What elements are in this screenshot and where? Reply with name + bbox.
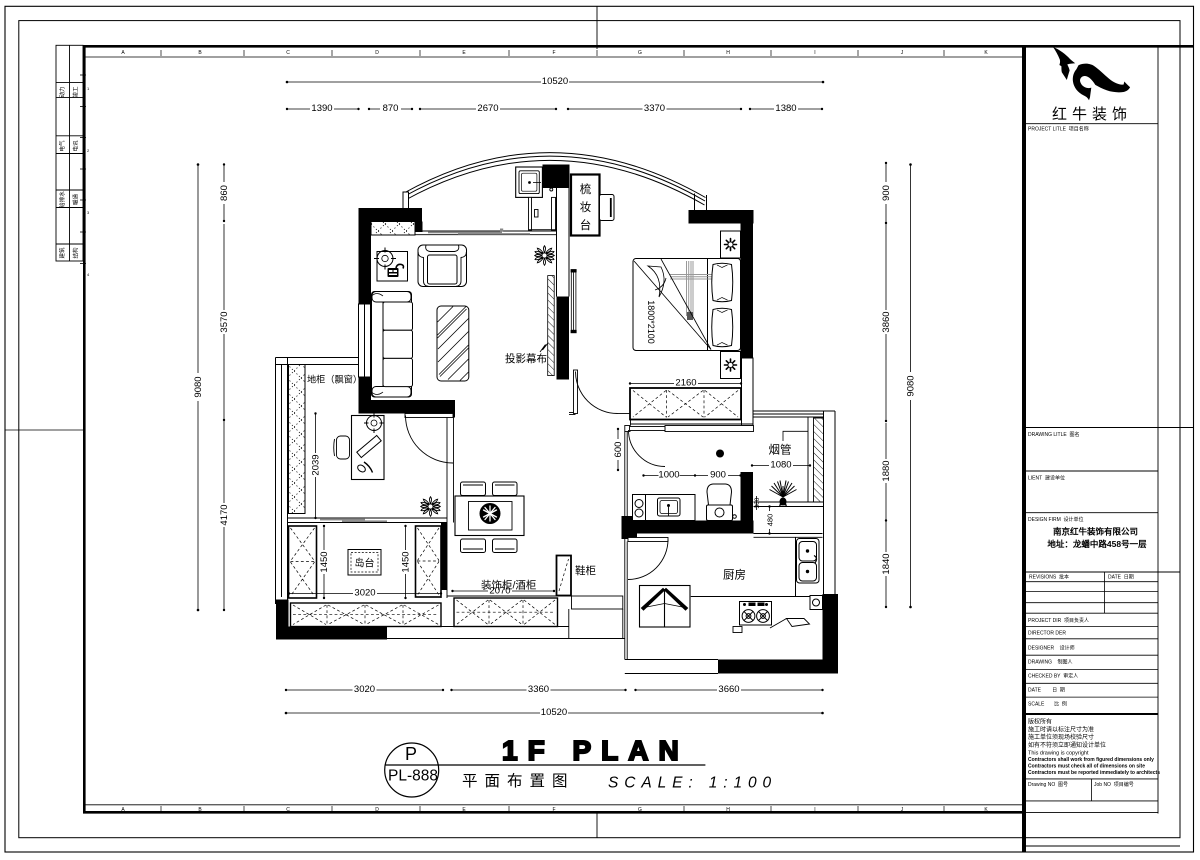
svg-text:2160: 2160 [675, 378, 696, 389]
svg-text:3020: 3020 [354, 588, 375, 599]
svg-text:360: 360 [754, 497, 761, 508]
svg-text:梳: 梳 [580, 182, 592, 196]
svg-text:1F PLAN: 1F PLAN [502, 735, 689, 766]
svg-text:装饰柜/酒柜: 装饰柜/酒柜 [481, 579, 536, 592]
svg-text:D: D [375, 807, 379, 813]
svg-text:1390: 1390 [311, 103, 332, 114]
svg-text:PROJECT LITLE 项目名称: PROJECT LITLE 项目名称 [1028, 126, 1089, 133]
svg-text:C: C [286, 807, 290, 813]
svg-text:9080: 9080 [906, 375, 917, 396]
svg-text:10520: 10520 [541, 707, 567, 718]
svg-text:C: C [286, 50, 290, 56]
svg-text:1450: 1450 [319, 551, 330, 572]
svg-text:平面布置图: 平面布置图 [462, 772, 575, 790]
svg-text:DATE 日期: DATE 日期 [1108, 575, 1134, 581]
svg-text:D: D [375, 50, 379, 56]
svg-text:岛台: 岛台 [355, 557, 375, 570]
svg-text:施工单位须现场校验尺寸: 施工单位须现场校验尺寸 [1028, 733, 1094, 741]
svg-text:如有不符须立即通知设计单位: 如有不符须立即通知设计单位 [1028, 741, 1106, 749]
svg-text:厨房: 厨房 [723, 569, 746, 582]
svg-text:CHECKED BY 审定人: CHECKED BY 审定人 [1028, 673, 1078, 680]
svg-text:南京红牛装饰有限公司: 南京红牛装饰有限公司 [1053, 527, 1138, 537]
svg-text:烟管: 烟管 [769, 443, 792, 457]
svg-text:地址：龙蟠中路458号一层: 地址：龙蟠中路458号一层 [1047, 539, 1147, 549]
svg-text:1380: 1380 [775, 103, 796, 114]
svg-text:9080: 9080 [193, 376, 204, 397]
svg-text:3020: 3020 [354, 684, 375, 695]
svg-text:Contractors must be reported i: Contractors must be reported immediately… [1028, 770, 1160, 776]
svg-text:1800*2100: 1800*2100 [646, 300, 656, 344]
svg-text:P: P [405, 744, 417, 764]
svg-text:动力: 动力 [58, 86, 66, 97]
svg-text:DATE 日 期: DATE 日 期 [1028, 688, 1065, 694]
svg-text:F: F [552, 50, 555, 56]
svg-text:建筑: 建筑 [58, 247, 66, 259]
svg-text:900: 900 [710, 470, 726, 481]
svg-text:DESIGNER 设计师: DESIGNER 设计师 [1028, 645, 1075, 652]
svg-text:10520: 10520 [542, 76, 568, 87]
svg-text:红牛装饰: 红牛装饰 [1052, 106, 1132, 123]
svg-text:I: I [814, 807, 815, 813]
svg-text:电讯: 电讯 [72, 140, 80, 152]
svg-text:Job NO 项目编号: Job NO 项目编号 [1094, 781, 1134, 788]
svg-text:3360: 3360 [528, 684, 549, 695]
svg-text:结构: 结构 [72, 247, 80, 259]
svg-text:900: 900 [881, 185, 892, 201]
svg-text:H: H [726, 50, 730, 56]
svg-text:This drawing is copyright: This drawing is copyright [1028, 750, 1089, 756]
svg-text:PROJECT DIR 项目负责人: PROJECT DIR 项目负责人 [1028, 617, 1089, 624]
svg-text:Drawing NO 图号: Drawing NO 图号 [1028, 782, 1068, 788]
svg-text:台: 台 [580, 218, 592, 232]
svg-text:3860: 3860 [881, 311, 892, 332]
svg-text:PL-888: PL-888 [388, 768, 438, 785]
svg-text:3570: 3570 [219, 311, 230, 332]
svg-text:G: G [638, 50, 642, 56]
svg-text:投影幕布: 投影幕布 [505, 352, 547, 365]
svg-text:1840: 1840 [881, 553, 892, 574]
svg-text:3370: 3370 [644, 103, 665, 114]
svg-text:妆: 妆 [580, 201, 592, 214]
svg-text:地柜（飘窗）: 地柜（飘窗） [307, 374, 362, 385]
svg-text:860: 860 [219, 185, 230, 201]
svg-text:SCALE: 1:100: SCALE: 1:100 [608, 775, 777, 792]
svg-text:施工时请以标注尺寸为准: 施工时请以标注尺寸为准 [1028, 725, 1094, 733]
svg-text:Contractors must check all of: Contractors must check all of dimensions… [1028, 764, 1145, 770]
svg-text:暖通: 暖通 [72, 194, 80, 206]
svg-text:REVISIONS 批本: REVISIONS 批本 [1029, 574, 1069, 581]
svg-text:Contractors shall work from fi: Contractors shall work from figured dime… [1028, 757, 1154, 763]
svg-text:DRAWING 制图人: DRAWING 制图人 [1028, 659, 1073, 666]
svg-text:电气: 电气 [58, 140, 66, 152]
svg-text:鞋柜: 鞋柜 [575, 564, 596, 577]
svg-text:竣工: 竣工 [72, 86, 80, 98]
svg-text:DESIGN FIRM 设计单位: DESIGN FIRM 设计单位 [1028, 516, 1084, 523]
svg-text:I: I [814, 50, 815, 56]
svg-text:1880: 1880 [881, 460, 892, 481]
svg-text:版权所有: 版权所有 [1028, 718, 1052, 726]
svg-text:2670: 2670 [477, 103, 498, 114]
svg-text:DIRECTOR DER: DIRECTOR DER [1028, 631, 1066, 637]
svg-text:480: 480 [766, 514, 775, 527]
svg-text:LIENT 建设单位: LIENT 建设单位 [1028, 475, 1065, 482]
svg-text:SCALE 比 例: SCALE 比 例 [1028, 701, 1067, 708]
svg-text:3660: 3660 [718, 684, 739, 695]
svg-text:DRAWING LITLE 图名: DRAWING LITLE 图名 [1028, 431, 1080, 438]
svg-text:600: 600 [613, 442, 624, 458]
svg-text:870: 870 [383, 103, 399, 114]
svg-text:1450: 1450 [401, 551, 412, 572]
svg-text:G: G [638, 807, 642, 813]
svg-text:1000: 1000 [658, 470, 679, 481]
svg-text:2039: 2039 [311, 454, 322, 475]
svg-text:F: F [552, 807, 555, 813]
svg-text:4170: 4170 [219, 504, 230, 525]
svg-text:给排水: 给排水 [58, 191, 66, 208]
svg-text:1080: 1080 [770, 460, 791, 471]
svg-text:H: H [726, 807, 730, 813]
